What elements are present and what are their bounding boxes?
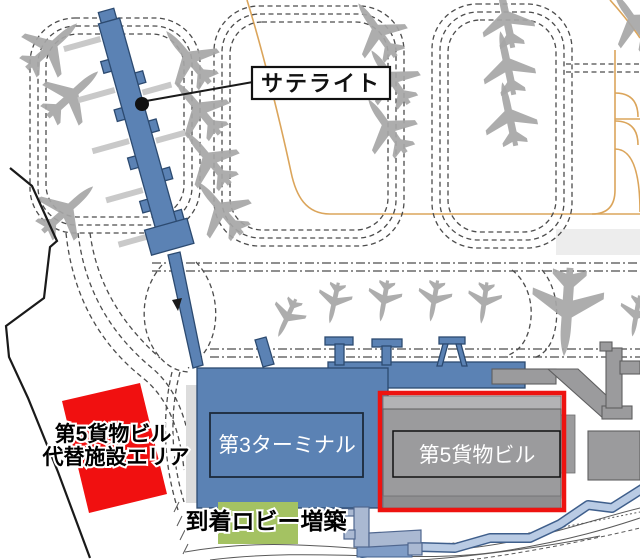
airplane-icon xyxy=(313,279,355,327)
airplane-icon xyxy=(263,292,311,344)
parked-aircraft xyxy=(9,0,640,359)
apron-pad xyxy=(556,229,640,255)
arrival-lobby-label: 到着ロビー増築 xyxy=(186,508,348,534)
airplane-icon xyxy=(25,166,112,252)
replacement-area-label-line2: 代替施設エリア xyxy=(42,445,190,469)
terminal3-label: 第3ターミナル xyxy=(218,434,356,457)
airplane-icon xyxy=(528,265,605,358)
map-canvas: サテライト 第3ターミナル 第5貨物ビル 第5貨物ビル 代替施設エリア 到着ロビ… xyxy=(0,0,640,560)
terminal-west-apron xyxy=(186,385,198,503)
satellite-callout: サテライト xyxy=(135,67,390,111)
pier-corridor xyxy=(168,252,203,368)
airplane-icon xyxy=(593,0,640,62)
orange-guidelines xyxy=(247,0,640,214)
airplane-icon xyxy=(616,293,640,340)
cargo5-label: 第5貨物ビル xyxy=(419,444,536,467)
airplane-icon xyxy=(364,278,404,325)
callout-dot-icon xyxy=(135,97,149,111)
airplane-icon xyxy=(414,278,454,325)
airport-map: サテライト 第3ターミナル 第5貨物ビル 第5貨物ビル 代替施設エリア 到着ロビ… xyxy=(0,0,640,560)
airplane-icon xyxy=(464,280,503,326)
satellite-label: サテライト xyxy=(261,71,381,96)
replacement-area-label-line1: 第5貨物ビル xyxy=(55,422,172,446)
east-small-building xyxy=(588,431,640,480)
